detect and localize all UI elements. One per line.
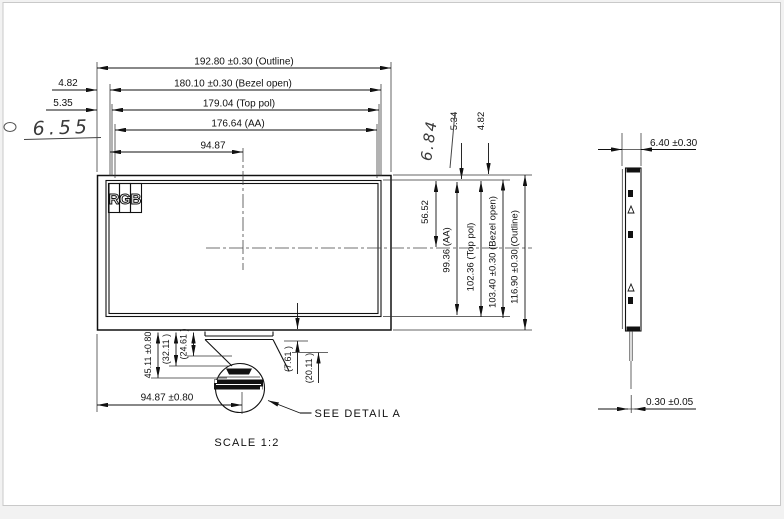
dim-outline-width: 192.80 ±0.30 (Outline) <box>194 57 293 68</box>
side-tape-mark <box>628 297 633 304</box>
dim-tail-fold-1: (32.11 ) <box>161 334 171 364</box>
scale-label: SCALE 1:2 <box>214 437 279 449</box>
dim-top-bezel-offset: 4.82 <box>476 112 487 131</box>
dim-side-fpc: 0.30 ±0.05 <box>646 397 694 408</box>
dim-tail-right-1: (7.61 ) <box>283 346 293 372</box>
dim-tail-right-2: (20.11 ) <box>304 353 314 383</box>
dim-half-height: 56.52 <box>420 200 431 224</box>
rgb-cell-r: R <box>109 192 120 208</box>
connector-stiffener <box>226 369 252 375</box>
drawing-sheet: R G B 192.80 ±0.30 (Outline) 180.10 ±0.3… <box>0 0 784 519</box>
dim-aa-height: 99.36 (AA) <box>442 227 453 272</box>
side-tape-mark <box>628 190 633 197</box>
dim-tail-length: 45.11 ±0.80 <box>143 332 153 379</box>
see-detail-label: SEE DETAIL A <box>315 408 402 420</box>
dim-side-thickness: 6.40 ±0.30 <box>650 138 698 149</box>
dim-bezel-open-height: 103.40 ±0.30 (Bezel open) <box>488 196 499 308</box>
dim-connector-center: 94.87 ±0.80 <box>141 393 194 404</box>
dim-left-bezel-offset: 4.82 <box>58 78 78 89</box>
dim-left-toppol-offset: 5.35 <box>53 98 73 109</box>
rgb-cell-b: B <box>131 192 141 208</box>
dim-top-pol-width: 179.04 (Top pol) <box>203 99 275 110</box>
side-tape-mark <box>628 231 633 238</box>
handwritten-left-note: 6.55 <box>32 116 91 140</box>
lcd-dimension-drawing: R G B 192.80 ±0.30 (Outline) 180.10 ±0.3… <box>0 0 784 519</box>
dim-half-width: 94.87 <box>200 141 225 152</box>
dim-outline-height: 116.90 ±0.30 (Outline) <box>510 210 521 304</box>
dim-bezel-open-width: 180.10 ±0.30 (Bezel open) <box>174 79 292 90</box>
rgb-cell-g: G <box>119 192 130 208</box>
dim-tail-fold-2: (24.61 ) <box>179 328 189 359</box>
dim-aa-width: 176.64 (AA) <box>211 119 264 130</box>
dim-top-pol-height: 102.36 (Top pol) <box>466 223 477 292</box>
